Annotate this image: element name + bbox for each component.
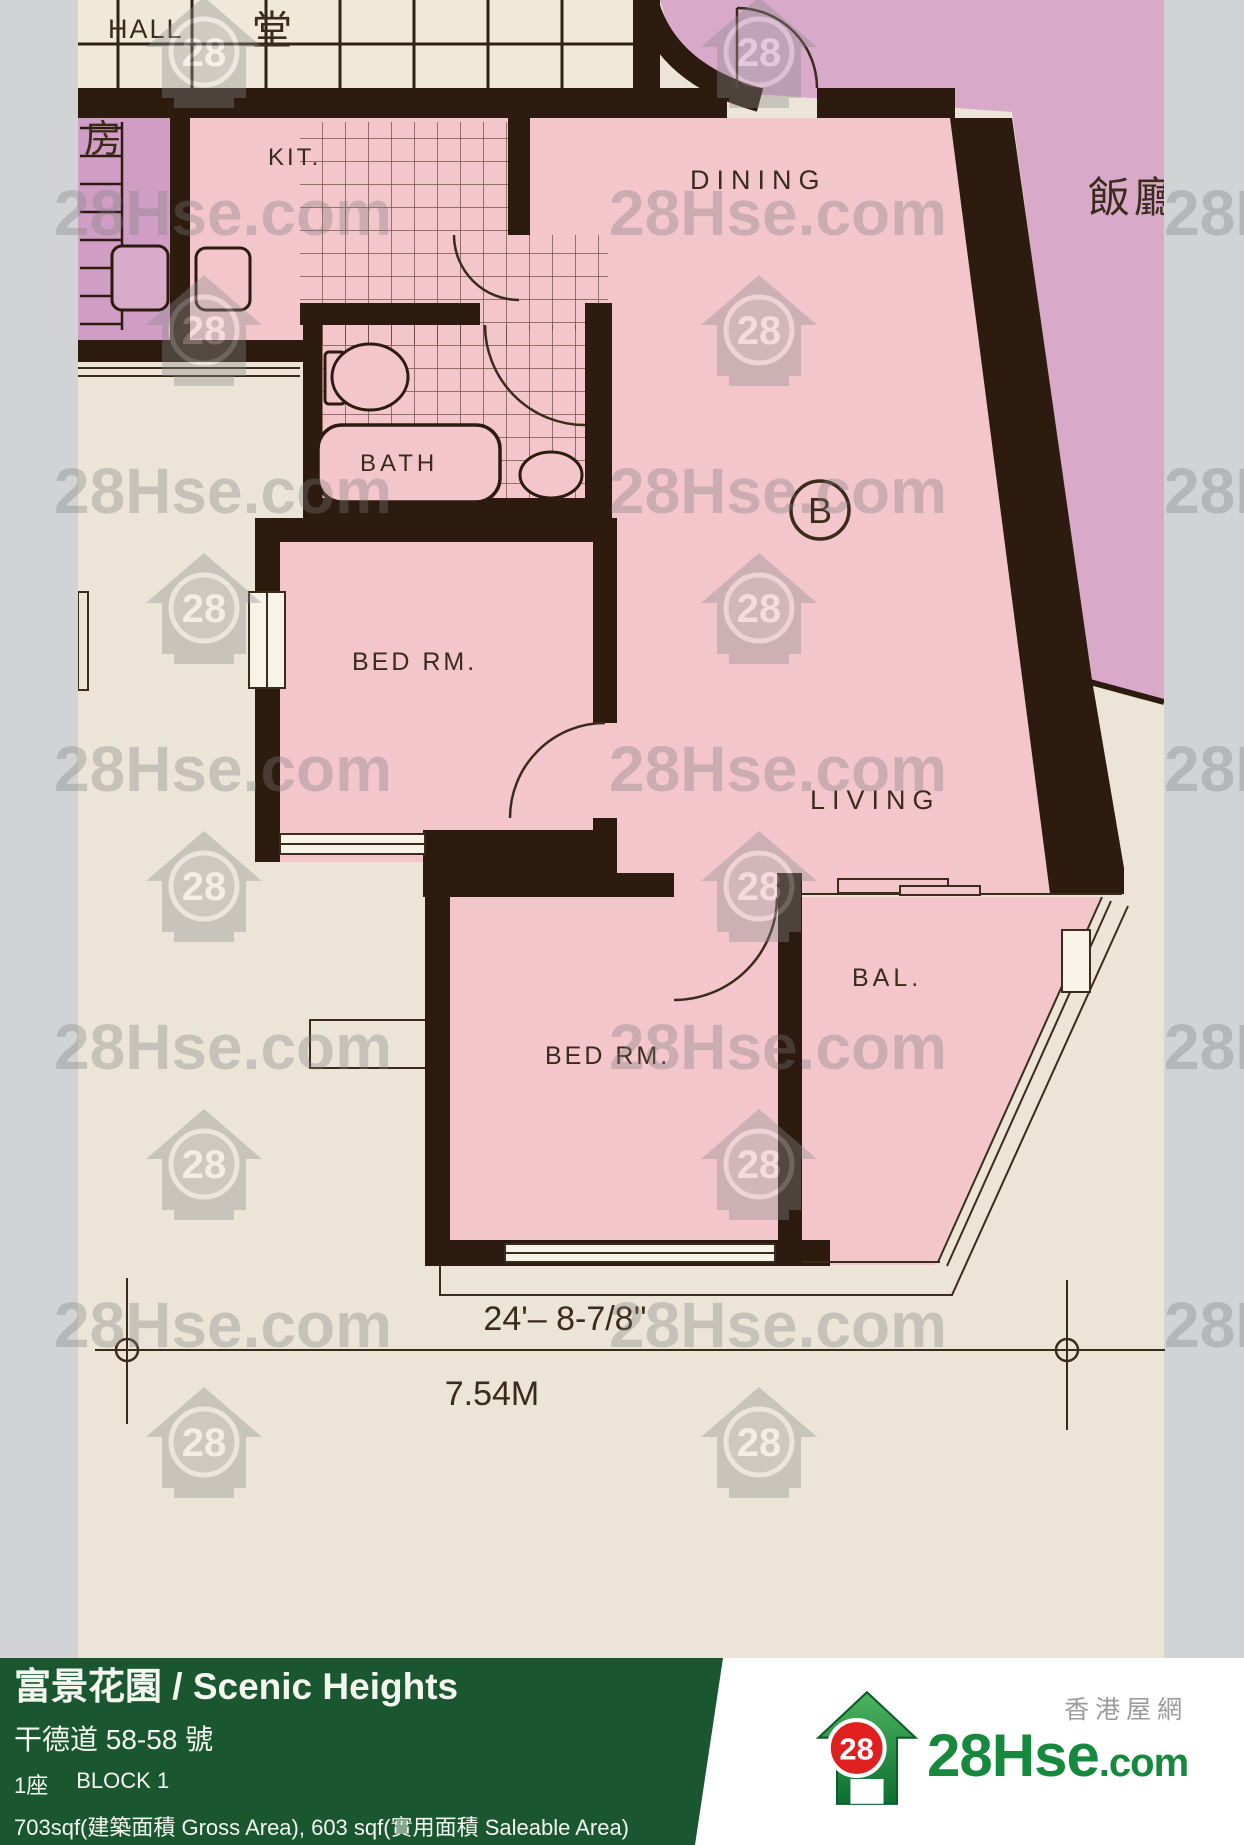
svg-text:28: 28 [737,865,782,909]
watermark-text: 28Hse.com [54,455,392,527]
svg-text:28: 28 [182,1421,227,1465]
bedroom1-room [255,518,617,862]
svg-text:28: 28 [182,309,227,353]
label-balcony: BAL. [852,964,922,992]
logo-house-icon: 28 [815,1686,919,1810]
watermark-text: 28Hse.com [609,733,947,805]
block-cn: 1座 [14,1768,48,1800]
watermark-text: 28Hse.com [54,1289,392,1361]
svg-text:28: 28 [737,31,782,75]
footer-bar: 富景花園 / Scenic Heights 干德道 58-58 號 1座 BLO… [0,1658,1244,1845]
svg-text:28: 28 [182,31,227,75]
footer-text-block: 富景花園 / Scenic Heights 干德道 58-58 號 1座 BLO… [14,1664,629,1842]
estate-title: 富景花園 / Scenic Heights [14,1664,629,1710]
estate-block: 1座 BLOCK 1 [14,1768,629,1800]
svg-text:28: 28 [737,587,782,631]
screenshot-root: HALL 堂 KIT. 房 DINING 飯廳 BATH BED RM. LIV… [0,0,1244,1845]
watermark-text: 28Hse.com [1164,455,1244,527]
svg-text:28: 28 [737,309,782,353]
logo-badge: 28 [839,1731,873,1766]
svg-text:28: 28 [737,1143,782,1187]
logo-sitename: 28Hse.com [927,1726,1188,1786]
estate-area: 703sqf(建築面積 Gross Area), 603 sqf(實用面積 Sa… [14,1810,629,1842]
floor-plan: HALL 堂 KIT. 房 DINING 飯廳 BATH BED RM. LIV… [0,0,1244,1658]
svg-text:28: 28 [737,1421,782,1465]
watermark-text: 28Hse.com [609,455,947,527]
neighbor-sink [112,246,168,310]
svg-text:28: 28 [182,865,227,909]
watermark-text: 28Hse.com [54,733,392,805]
watermark-text: 28Hse.com [1164,733,1244,805]
basin [520,452,582,498]
watermark-text: 28Hse.com [1164,177,1244,249]
watermark-text: 28Hse.com [1164,1011,1244,1083]
logo-area: 28 香港屋網 28Hse.com [695,1658,1244,1845]
logo-tagline: 香港屋網 [927,1690,1188,1726]
watermark-text: 28Hse.com [1164,1289,1244,1361]
watermark-text: 28Hse.com [54,177,392,249]
watermark-text: 28Hse.com [609,177,947,249]
estate-address: 干德道 58-58 號 [14,1718,629,1758]
label-kitchen: KIT. [268,144,321,171]
svg-text:28: 28 [182,1143,227,1187]
toilet-bowl [332,344,408,410]
watermark-text: 28Hse.com [609,1289,947,1361]
svg-text:28: 28 [182,587,227,631]
watermark-text: 28Hse.com [609,1011,947,1083]
block-en: BLOCK 1 [76,1768,169,1800]
label-bedroom1: BED RM. [352,648,477,676]
watermark-text: 28Hse.com [54,1011,392,1083]
dimension-metric: 7.54M [445,1375,540,1413]
label-room-cn: 房 [84,119,122,161]
